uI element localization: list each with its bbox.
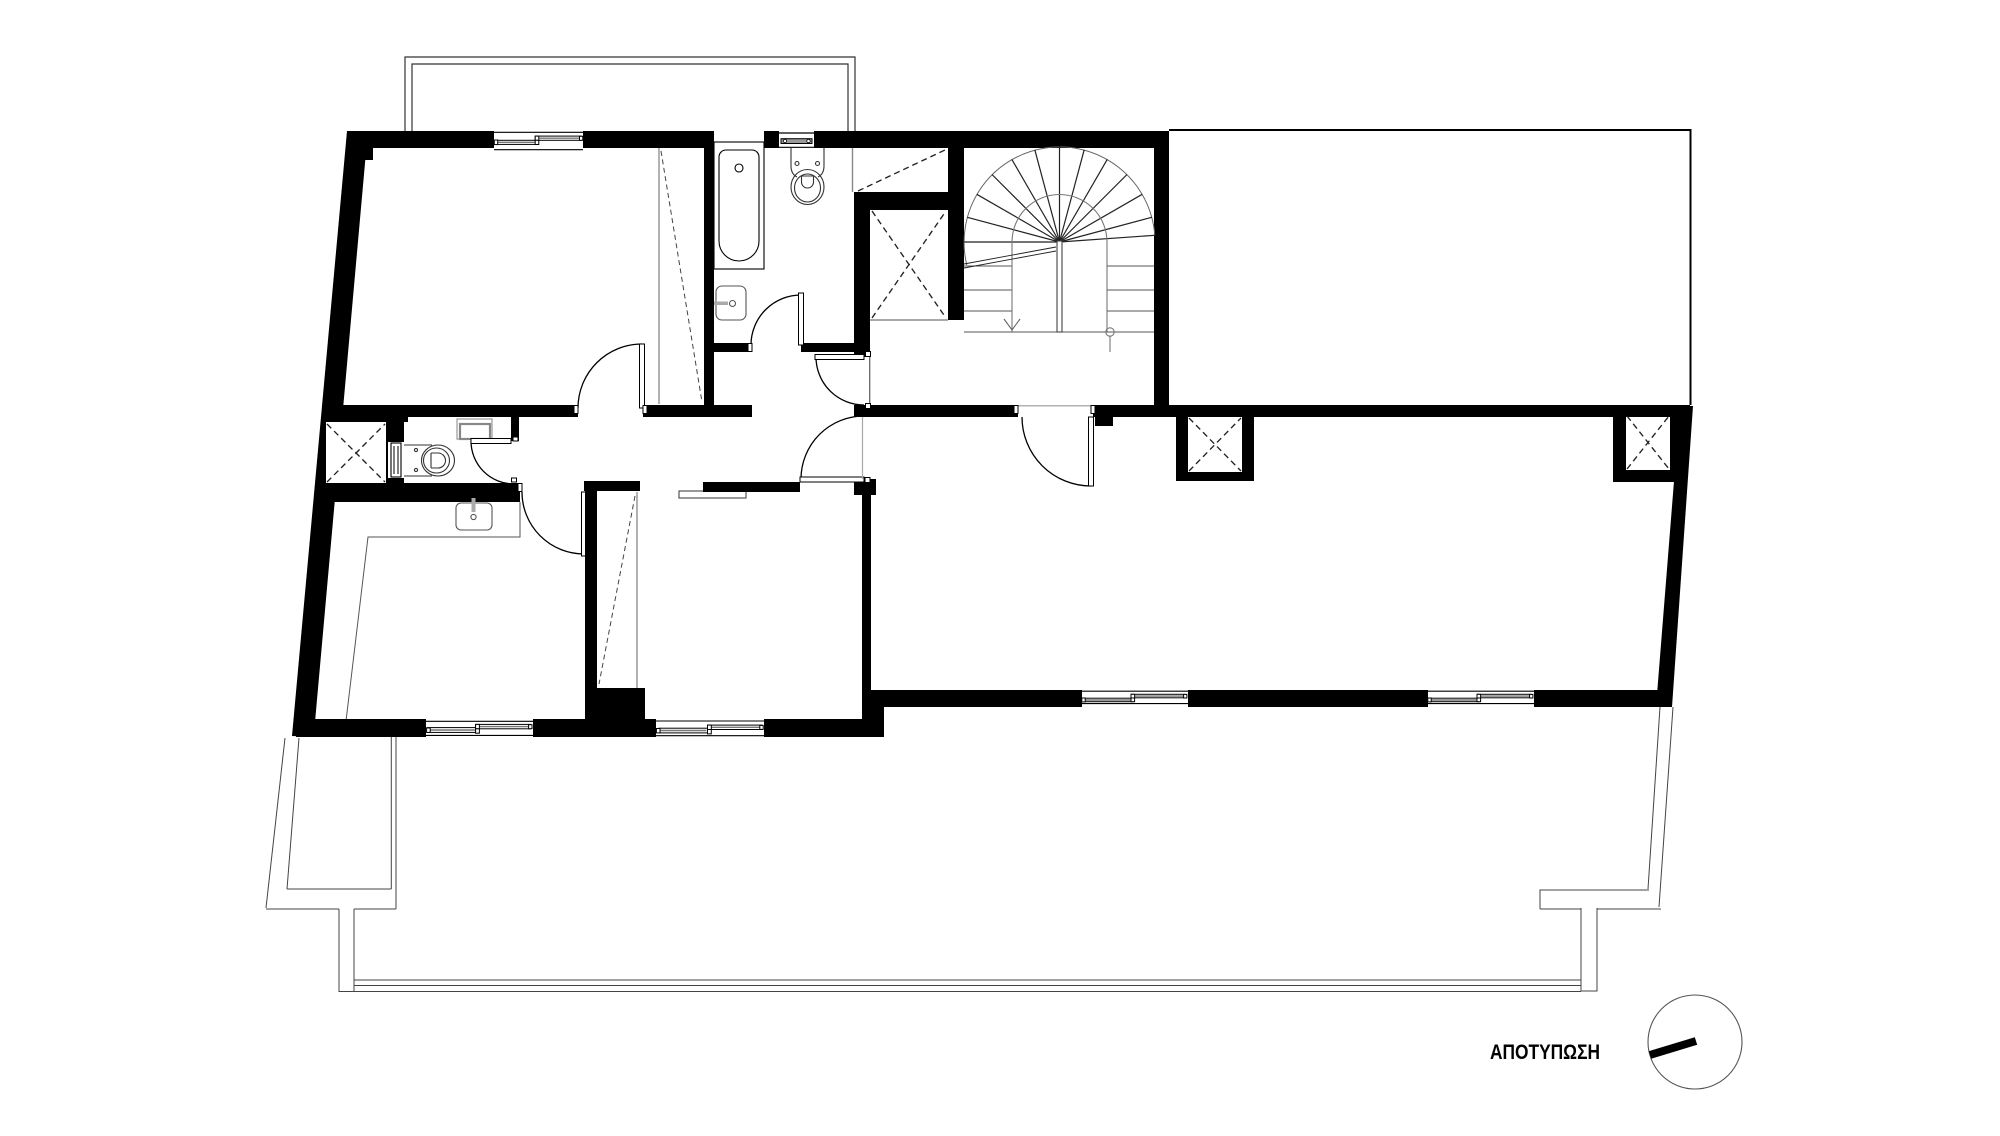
svg-text:ΑΠΟΤΥΠΩΣΗ: ΑΠΟΤΥΠΩΣΗ bbox=[1490, 1041, 1600, 1064]
